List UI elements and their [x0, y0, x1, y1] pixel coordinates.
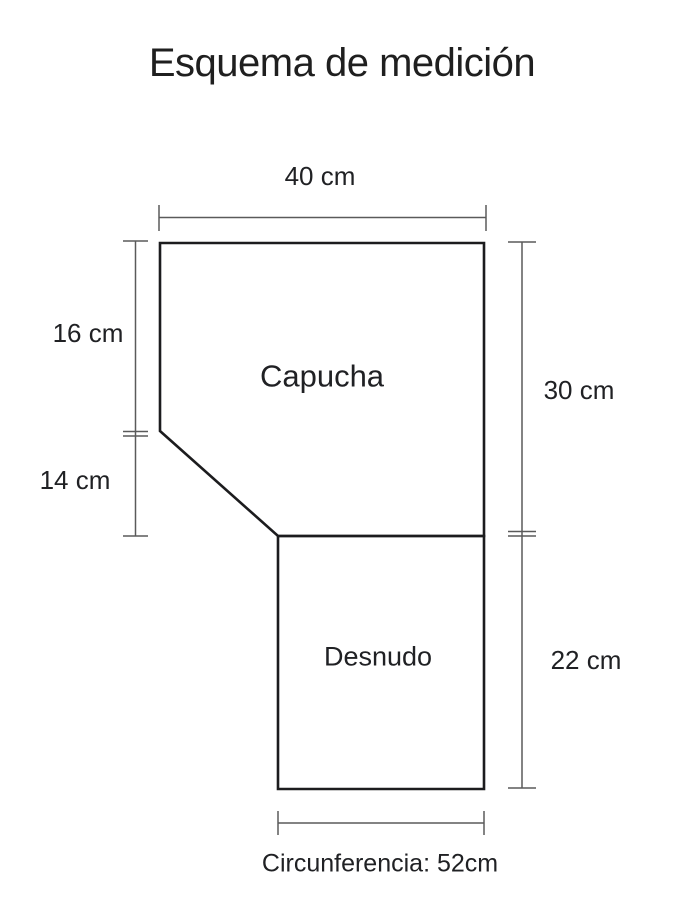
top-width-label: 40 cm	[285, 163, 356, 189]
bottom-dimension-line	[278, 811, 484, 835]
left-upper-label: 16 cm	[53, 320, 124, 346]
circumference-label: Circunferencia: 52cm	[262, 852, 498, 877]
left-dimension-line	[123, 241, 148, 536]
desnudo-section-label: Desnudo	[324, 644, 432, 671]
measurement-diagram	[0, 0, 684, 916]
right-dimension-line	[508, 242, 536, 788]
measurement-schema-page: Esquema de medición	[0, 0, 684, 916]
top-dimension-line	[159, 205, 486, 231]
right-upper-label: 30 cm	[544, 377, 615, 403]
capucha-section-label: Capucha	[260, 361, 384, 392]
right-lower-label: 22 cm	[551, 647, 622, 673]
left-lower-label: 14 cm	[40, 467, 111, 493]
